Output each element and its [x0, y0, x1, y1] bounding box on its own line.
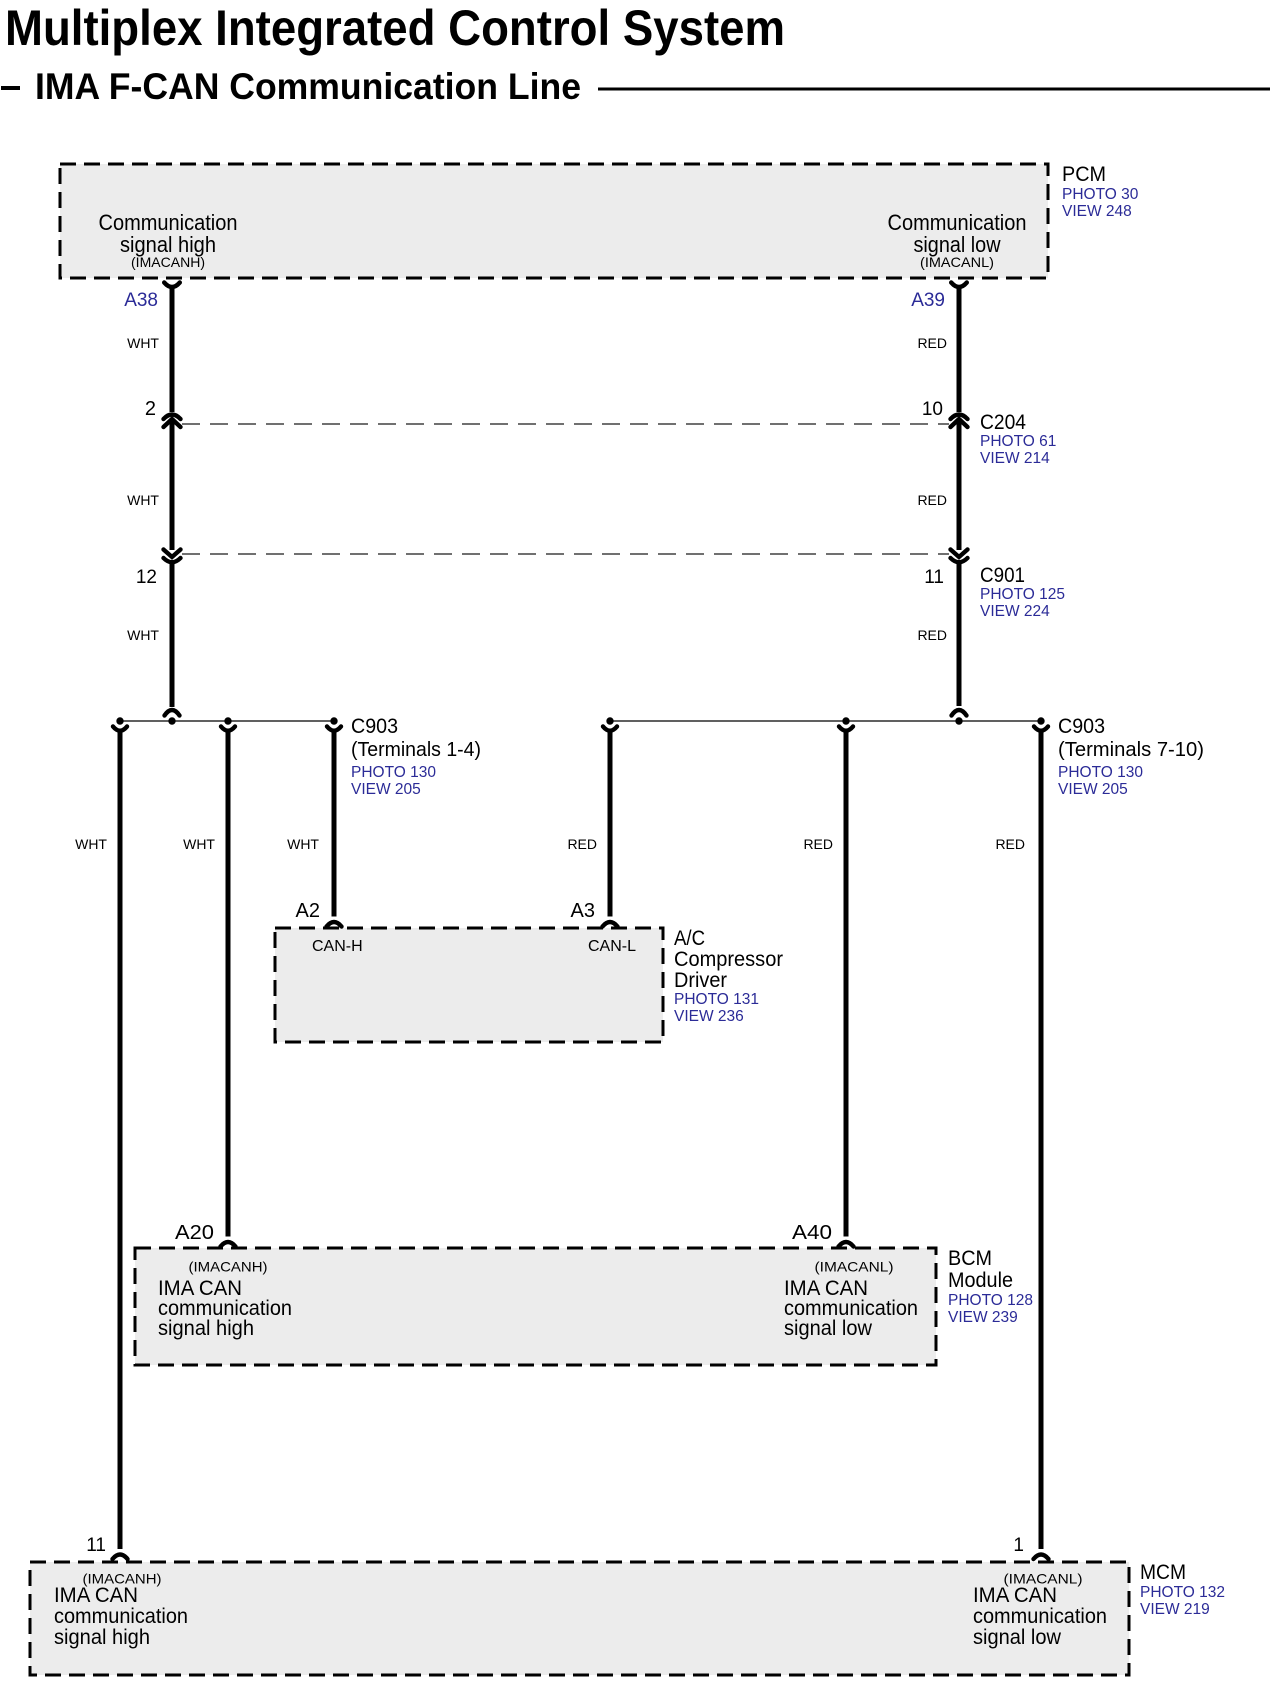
svg-text:PHOTO 61: PHOTO 61	[980, 433, 1056, 450]
svg-text:Multiplex Integrated Control S: Multiplex Integrated Control System	[5, 0, 785, 56]
svg-text:CAN-L: CAN-L	[588, 938, 636, 955]
svg-text:RED: RED	[803, 836, 833, 852]
svg-text:communication: communication	[54, 1605, 188, 1628]
svg-text:VIEW 248: VIEW 248	[1062, 203, 1132, 220]
svg-text:10: 10	[922, 399, 943, 420]
svg-text:(IMACANL): (IMACANL)	[920, 254, 994, 270]
svg-text:PHOTO 125: PHOTO 125	[980, 586, 1065, 603]
svg-text:VIEW 205: VIEW 205	[351, 781, 421, 798]
svg-text:RED: RED	[567, 836, 597, 852]
svg-text:BCM: BCM	[948, 1247, 992, 1270]
svg-text:signal low: signal low	[784, 1317, 873, 1340]
svg-text:Compressor: Compressor	[674, 948, 783, 971]
svg-text:IMA F-CAN Communication Line: IMA F-CAN Communication Line	[35, 66, 581, 107]
svg-text:A39: A39	[911, 290, 945, 311]
svg-text:(Terminals 1-4): (Terminals 1-4)	[351, 739, 481, 761]
svg-text:VIEW 214: VIEW 214	[980, 450, 1050, 467]
svg-text:VIEW 236: VIEW 236	[674, 1008, 744, 1025]
svg-text:VIEW 239: VIEW 239	[948, 1309, 1018, 1326]
svg-text:signal low: signal low	[973, 1626, 1062, 1649]
svg-text:MCM: MCM	[1140, 1561, 1186, 1584]
svg-text:PCM: PCM	[1062, 163, 1106, 186]
svg-text:PHOTO 30: PHOTO 30	[1062, 186, 1139, 203]
svg-text:RED: RED	[917, 492, 947, 508]
svg-text:C204: C204	[980, 411, 1026, 434]
svg-text:A20: A20	[175, 1222, 214, 1244]
svg-text:(IMACANH): (IMACANH)	[131, 254, 205, 270]
svg-text:(Terminals 7-10): (Terminals 7-10)	[1058, 739, 1204, 761]
svg-text:A/C: A/C	[674, 927, 705, 950]
svg-text:A38: A38	[124, 290, 158, 311]
svg-text:PHOTO 131: PHOTO 131	[674, 991, 759, 1008]
svg-text:C901: C901	[980, 564, 1025, 587]
svg-text:2: 2	[145, 398, 156, 420]
svg-text:communication: communication	[973, 1605, 1107, 1628]
svg-text:1: 1	[1013, 1535, 1024, 1556]
svg-text:WHT: WHT	[127, 627, 159, 643]
svg-text:C903: C903	[1058, 715, 1105, 738]
svg-text:11: 11	[924, 567, 944, 588]
svg-text:WHT: WHT	[75, 836, 107, 852]
svg-text:CAN-H: CAN-H	[312, 938, 363, 955]
svg-text:PHOTO 128: PHOTO 128	[948, 1292, 1033, 1309]
svg-text:12: 12	[136, 567, 157, 588]
svg-text:A3: A3	[571, 900, 595, 922]
svg-text:PHOTO 130: PHOTO 130	[351, 764, 436, 781]
svg-text:PHOTO 130: PHOTO 130	[1058, 764, 1143, 781]
svg-text:(IMACANH): (IMACANH)	[189, 1259, 268, 1275]
svg-text:Module: Module	[948, 1269, 1013, 1292]
svg-text:signal high: signal high	[158, 1317, 254, 1340]
svg-text:VIEW 219: VIEW 219	[1140, 1601, 1210, 1618]
svg-text:WHT: WHT	[127, 492, 159, 508]
svg-text:PHOTO 132: PHOTO 132	[1140, 1584, 1225, 1601]
svg-text:WHT: WHT	[127, 335, 159, 351]
svg-text:VIEW 224: VIEW 224	[980, 603, 1050, 620]
svg-text:signal high: signal high	[54, 1626, 150, 1649]
svg-text:11: 11	[86, 1535, 106, 1556]
svg-text:A40: A40	[792, 1222, 832, 1244]
svg-text:IMA CAN: IMA CAN	[54, 1584, 138, 1607]
svg-text:WHT: WHT	[287, 836, 319, 852]
svg-text:Driver: Driver	[674, 969, 727, 992]
svg-text:VIEW 205: VIEW 205	[1058, 781, 1128, 798]
svg-text:WHT: WHT	[183, 836, 215, 852]
svg-text:IMA CAN: IMA CAN	[973, 1584, 1057, 1607]
svg-text:(IMACANL): (IMACANL)	[815, 1259, 894, 1275]
svg-text:RED: RED	[917, 627, 947, 643]
svg-text:C903: C903	[351, 715, 398, 738]
svg-text:RED: RED	[917, 335, 947, 351]
svg-text:RED: RED	[995, 836, 1025, 852]
svg-text:A2: A2	[296, 900, 320, 922]
